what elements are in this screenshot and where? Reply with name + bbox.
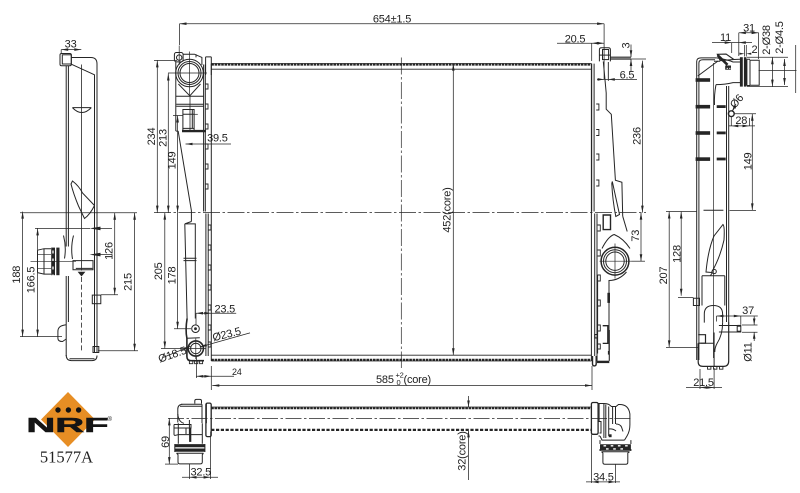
svg-text:585: 585 bbox=[376, 374, 394, 386]
svg-text:654±1.5: 654±1.5 bbox=[373, 13, 411, 25]
svg-text:24: 24 bbox=[232, 367, 242, 377]
svg-text:6.5: 6.5 bbox=[620, 70, 635, 82]
svg-text:166.5: 166.5 bbox=[26, 267, 38, 294]
svg-text:28: 28 bbox=[735, 115, 747, 127]
svg-text:126: 126 bbox=[104, 242, 116, 260]
svg-text:31: 31 bbox=[743, 23, 755, 35]
svg-text:®: ® bbox=[108, 416, 113, 423]
svg-text:(core): (core) bbox=[404, 374, 432, 386]
svg-text:236: 236 bbox=[631, 127, 643, 145]
svg-text:2: 2 bbox=[752, 44, 758, 56]
svg-text:149: 149 bbox=[167, 152, 179, 170]
svg-text:69: 69 bbox=[160, 436, 172, 448]
svg-text:NRF: NRF bbox=[26, 414, 108, 437]
svg-text:37: 37 bbox=[742, 305, 754, 317]
svg-text:51577A: 51577A bbox=[40, 448, 93, 467]
svg-text:213: 213 bbox=[157, 129, 169, 147]
svg-text:32(core): 32(core) bbox=[457, 431, 469, 470]
svg-text:21.5: 21.5 bbox=[693, 377, 714, 389]
svg-text:23.5: 23.5 bbox=[214, 303, 235, 315]
svg-text:73: 73 bbox=[630, 230, 642, 242]
svg-text:Ø18.5: Ø18.5 bbox=[157, 345, 188, 366]
svg-text:207: 207 bbox=[658, 267, 670, 285]
svg-text:178: 178 bbox=[167, 267, 179, 285]
svg-text:215: 215 bbox=[123, 273, 135, 291]
svg-text:149: 149 bbox=[743, 152, 755, 170]
svg-text:Ø23.5: Ø23.5 bbox=[211, 326, 242, 345]
svg-text:32.5: 32.5 bbox=[190, 467, 211, 479]
svg-text:11: 11 bbox=[720, 32, 731, 44]
svg-text:234: 234 bbox=[146, 128, 158, 146]
svg-text:33: 33 bbox=[65, 39, 77, 51]
svg-text:3: 3 bbox=[621, 43, 633, 49]
svg-text:39.5: 39.5 bbox=[207, 133, 228, 145]
svg-text:2-Ø4.5: 2-Ø4.5 bbox=[774, 21, 786, 54]
svg-text:Ø11: Ø11 bbox=[743, 342, 755, 361]
svg-text:188: 188 bbox=[11, 266, 23, 284]
svg-text:34.5: 34.5 bbox=[593, 472, 614, 484]
svg-text:128: 128 bbox=[671, 245, 683, 263]
svg-text:2-Ø38: 2-Ø38 bbox=[761, 25, 773, 55]
svg-text:205: 205 bbox=[153, 262, 165, 280]
svg-text:452(core): 452(core) bbox=[441, 187, 453, 232]
svg-text:Ø6: Ø6 bbox=[728, 92, 746, 111]
svg-text:20.5: 20.5 bbox=[565, 33, 586, 45]
svg-text:0: 0 bbox=[397, 378, 401, 387]
